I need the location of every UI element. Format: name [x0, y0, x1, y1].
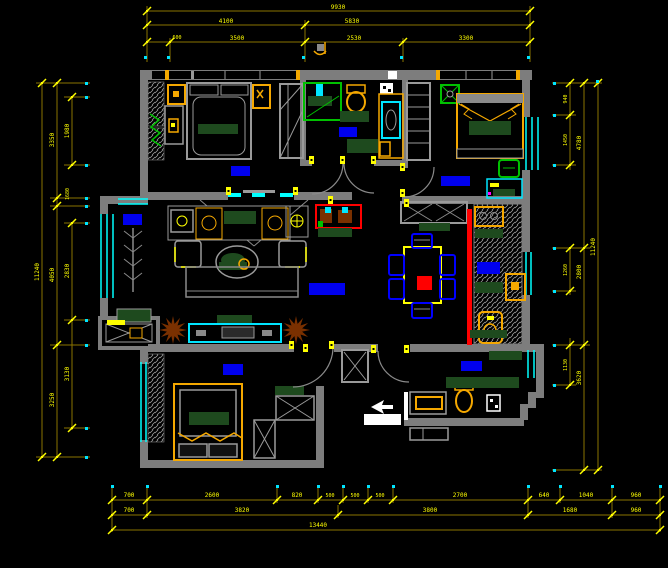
wall-bath2-bottom: [404, 418, 524, 426]
dim-tick: [56, 344, 58, 346]
dim-tick: [111, 514, 113, 516]
dim-tick: [597, 469, 599, 471]
extension-marker: [276, 485, 279, 488]
hatch-pillar: [148, 354, 164, 442]
bath-counter: [446, 377, 519, 388]
dim-text: 1260: [563, 264, 569, 276]
sideboard-top: [419, 223, 450, 231]
dim-text: 3250: [49, 392, 56, 407]
dim-text: 2700: [453, 492, 468, 499]
door-hinge-dot: [402, 166, 404, 168]
vent-box: [380, 83, 393, 94]
dim-tick: [56, 205, 58, 207]
dim-tick: [317, 499, 319, 501]
wall-bedroom3-right: [316, 386, 324, 462]
wall-vent: [388, 71, 397, 79]
dim-text: 700: [124, 492, 135, 499]
extension-marker: [302, 56, 305, 59]
dim-tick: [276, 499, 278, 501]
dim-tick: [146, 10, 148, 12]
dim-text: 5830: [345, 18, 360, 25]
dim-tick: [111, 529, 113, 531]
dim-tick: [146, 41, 148, 43]
floor-drain-dot: [495, 405, 498, 408]
extension-marker: [527, 56, 530, 59]
nightstand-lamp: [173, 91, 179, 97]
wall-bath2-jog: [516, 344, 544, 352]
door-hinge-dot: [406, 348, 408, 350]
dim-tick: [71, 96, 73, 98]
dim-text: 3130: [64, 366, 71, 381]
dim-text: 1130: [563, 359, 569, 371]
extension-marker: [367, 485, 370, 488]
room-label: [223, 364, 243, 375]
console-shelf: [318, 228, 352, 237]
dim-tick: [367, 499, 369, 501]
dim-text: 1450: [563, 134, 569, 146]
dim-text: 600: [172, 35, 181, 41]
door-hinge-dot: [305, 347, 307, 349]
pillow: [469, 121, 511, 135]
dim-tick: [529, 24, 531, 26]
dim-text: 2600: [205, 492, 220, 499]
wall-right-kitchen-b: [522, 295, 530, 345]
door-hinge-dot: [331, 344, 333, 346]
dim-tick: [56, 82, 58, 84]
dim-tick: [71, 222, 73, 224]
bath-counter: [489, 351, 522, 360]
dim-tick: [146, 514, 148, 516]
dim-text: 4050: [49, 267, 56, 282]
shower-bench: [308, 96, 332, 106]
tv-cabinet-item: [196, 330, 206, 336]
desk-item: [490, 183, 499, 187]
tv-icon: [222, 327, 254, 338]
desk-blotter: [493, 189, 515, 196]
sliding-door-track: [280, 193, 293, 197]
extension-marker: [553, 469, 556, 472]
wall-bath-bottom-b: [374, 160, 402, 166]
dim-text: 960: [631, 507, 642, 514]
extension-marker: [553, 164, 556, 167]
pillow: [189, 412, 229, 425]
extension-marker: [527, 485, 530, 488]
room-label: [477, 262, 500, 274]
hatch-pillar: [148, 82, 164, 126]
hatch-pillar: [148, 128, 164, 160]
dim-tick: [569, 344, 571, 346]
extension-marker: [553, 290, 556, 293]
extension-marker: [85, 222, 88, 225]
door-hinge-dot: [342, 159, 344, 161]
dim-tick: [611, 499, 613, 501]
dim-text: 3800: [423, 507, 438, 514]
door-hinge-dot: [311, 159, 313, 161]
dim-text: 4780: [576, 135, 583, 150]
vent-dot: [388, 89, 391, 92]
dim-tick: [71, 319, 73, 321]
wall-hall-stub: [332, 192, 352, 200]
door-hinge-dot: [228, 190, 230, 192]
dim-text: 4100: [219, 18, 234, 25]
dim-text: 3500: [230, 35, 245, 42]
extension-marker: [553, 82, 556, 85]
dim-tick: [611, 514, 613, 516]
entry-landing: [410, 428, 448, 440]
dim-tick: [527, 514, 529, 516]
wall-left-bedroom1: [140, 70, 148, 202]
wall-bedroom1-bottom-b: [294, 192, 332, 200]
extension-marker: [85, 96, 88, 99]
extension-marker: [85, 427, 88, 430]
dim-tick: [569, 82, 571, 84]
extension-marker: [85, 319, 88, 322]
dim-text: 1040: [579, 492, 594, 499]
extension-marker: [553, 247, 556, 250]
dim-tick: [41, 456, 43, 458]
extension-marker: [85, 197, 88, 200]
dim-text: 3620: [576, 370, 583, 385]
bath-counter: [347, 139, 378, 153]
wall-right-kitchen-a: [522, 210, 530, 252]
dim-tick: [659, 529, 661, 531]
wall-bath2-step1: [528, 392, 536, 408]
bath-counter: [340, 111, 369, 122]
extension-marker: [659, 485, 662, 488]
exhaust-fan-hub: [447, 91, 453, 97]
extension-marker: [553, 344, 556, 347]
dim-tick: [111, 499, 113, 501]
tv-cabinet-item: [262, 330, 272, 336]
dim-tick: [304, 24, 306, 26]
pillow: [198, 124, 238, 134]
bed-drawer: [209, 444, 237, 457]
dim-tick: [569, 247, 571, 249]
extension-marker: [85, 164, 88, 167]
extension-marker: [596, 80, 599, 83]
dim-tick: [583, 82, 585, 84]
dim-text: 2800: [576, 264, 583, 279]
dim-text: 3820: [235, 507, 250, 514]
dresser-knob-dot: [171, 123, 175, 127]
wall-bedroom3-left-top: [140, 348, 148, 364]
window-post: [516, 70, 520, 80]
extension-marker: [317, 485, 320, 488]
dim-text: 13440: [309, 522, 327, 529]
room-label: [123, 214, 142, 225]
room-label: [309, 283, 345, 295]
sofa-cushion: [224, 211, 256, 224]
dim-tick: [569, 384, 571, 386]
window-mullion: [191, 71, 194, 79]
room-label: [461, 361, 482, 371]
wall-bath2-right: [536, 352, 544, 398]
dim-text: 11240: [34, 263, 41, 281]
dim-tick: [169, 41, 171, 43]
dim-tick: [146, 24, 148, 26]
wall-living-left-top: [100, 196, 108, 214]
table-centerpiece: [417, 276, 432, 290]
window-post: [296, 70, 300, 80]
extension-marker: [85, 205, 88, 208]
dim-tick: [342, 499, 344, 501]
section-marker-icon: [317, 44, 324, 51]
door-hinge-dot: [373, 348, 375, 350]
extension-marker: [144, 56, 147, 59]
sliding-door-leaf: [243, 190, 275, 193]
dim-tick: [41, 82, 43, 84]
accent-wall-line: [467, 209, 472, 345]
dim-tick: [529, 41, 531, 43]
extension-marker: [146, 485, 149, 488]
wall-bath2-step2: [520, 404, 528, 420]
media-shelf: [217, 315, 252, 323]
extension-marker: [342, 485, 345, 488]
extension-marker: [400, 56, 403, 59]
dim-tick: [527, 499, 529, 501]
decor-item: [342, 207, 348, 213]
dim-text: 1680: [65, 188, 71, 200]
extension-marker: [611, 485, 614, 488]
entry-label-block: [364, 414, 401, 425]
wall-right-mid: [522, 170, 530, 210]
water-heater-dot: [487, 316, 494, 320]
room-label: [339, 127, 357, 137]
dim-text: 700: [124, 507, 135, 514]
dim-text: 820: [292, 492, 303, 499]
shelf: [275, 386, 304, 395]
extension-marker: [85, 82, 88, 85]
floor-drain-dot: [490, 399, 493, 402]
dim-tick: [659, 514, 661, 516]
desk-dot: [488, 192, 491, 195]
dim-text: 640: [539, 492, 550, 499]
decor-item: [318, 221, 323, 227]
extension-marker: [559, 485, 562, 488]
dim-text: 960: [631, 492, 642, 499]
dim-text: 500: [350, 493, 359, 499]
dim-text: 3300: [459, 35, 474, 42]
dim-text: 940: [563, 94, 569, 103]
dim-tick: [659, 499, 661, 501]
room-label: [231, 166, 250, 176]
dim-text: 11240: [590, 238, 597, 256]
dim-tick: [402, 41, 404, 43]
dim-tick: [304, 41, 306, 43]
extension-marker: [167, 56, 170, 59]
extension-marker: [553, 384, 556, 387]
window-opening: [440, 71, 518, 79]
dim-tick: [146, 499, 148, 501]
entry-door-leaf: [404, 392, 408, 420]
dim-tick: [56, 456, 58, 458]
kitchen-counter: [470, 330, 507, 338]
dim-tick: [529, 10, 531, 12]
extension-marker: [85, 344, 88, 347]
window-post: [165, 70, 169, 80]
wall-bath2-top: [410, 344, 520, 352]
dim-tick: [71, 164, 73, 166]
extension-marker: [392, 485, 395, 488]
dim-text: 500: [325, 493, 334, 499]
dim-tick: [559, 499, 561, 501]
dim-tick: [337, 514, 339, 516]
bed: [187, 83, 251, 159]
wall-bedroom3-top: [148, 344, 294, 352]
door-hinge-dot: [402, 192, 404, 194]
dim-text: 500: [375, 493, 384, 499]
door-hinge-dot: [373, 159, 375, 161]
door-hinge-dot: [295, 190, 297, 192]
dim-text: 2530: [347, 35, 362, 42]
dim-tick: [583, 247, 585, 249]
bed-footboard: [457, 149, 523, 158]
wall-bedroom1-bottom-a: [148, 192, 228, 200]
cad-canvas[interactable]: 9930410058306003500253033007002600820500…: [0, 0, 668, 568]
dim-text: 1980: [64, 123, 71, 138]
bed-drawer: [179, 444, 207, 457]
shower-head-icon: [316, 84, 323, 96]
kitchen-counter: [475, 282, 503, 293]
door-hinge-dot: [406, 202, 408, 204]
washer-item: [107, 320, 125, 325]
floor-drain: [487, 395, 500, 411]
dim-text: 9930: [331, 4, 346, 11]
kitchen-counter: [475, 229, 503, 238]
dim-tick: [569, 114, 571, 116]
room-label: [441, 176, 470, 186]
washer-item: [130, 328, 142, 338]
door-hinge-dot: [330, 199, 332, 201]
wall-bedroom3-bottom: [146, 460, 324, 468]
vent-dot: [383, 86, 386, 89]
dim-text: 1680: [563, 507, 578, 514]
decor-item: [325, 207, 331, 213]
door-hinge-dot: [291, 344, 293, 346]
dim-text: 3350: [49, 132, 56, 147]
dim-tick: [56, 197, 58, 199]
extension-marker: [111, 485, 114, 488]
dim-tick: [583, 469, 585, 471]
extension-marker: [553, 114, 556, 117]
dim-text: 2830: [64, 263, 71, 278]
window-post: [436, 70, 440, 80]
headboard: [457, 94, 523, 103]
dim-tick: [392, 499, 394, 501]
sliding-door-track: [252, 193, 265, 197]
extension-marker: [85, 456, 88, 459]
dim-tick: [569, 164, 571, 166]
dim-tick: [569, 290, 571, 292]
dim-tick: [71, 427, 73, 429]
kitchen-appliance-door: [511, 282, 519, 290]
dim-tick: [583, 344, 585, 346]
